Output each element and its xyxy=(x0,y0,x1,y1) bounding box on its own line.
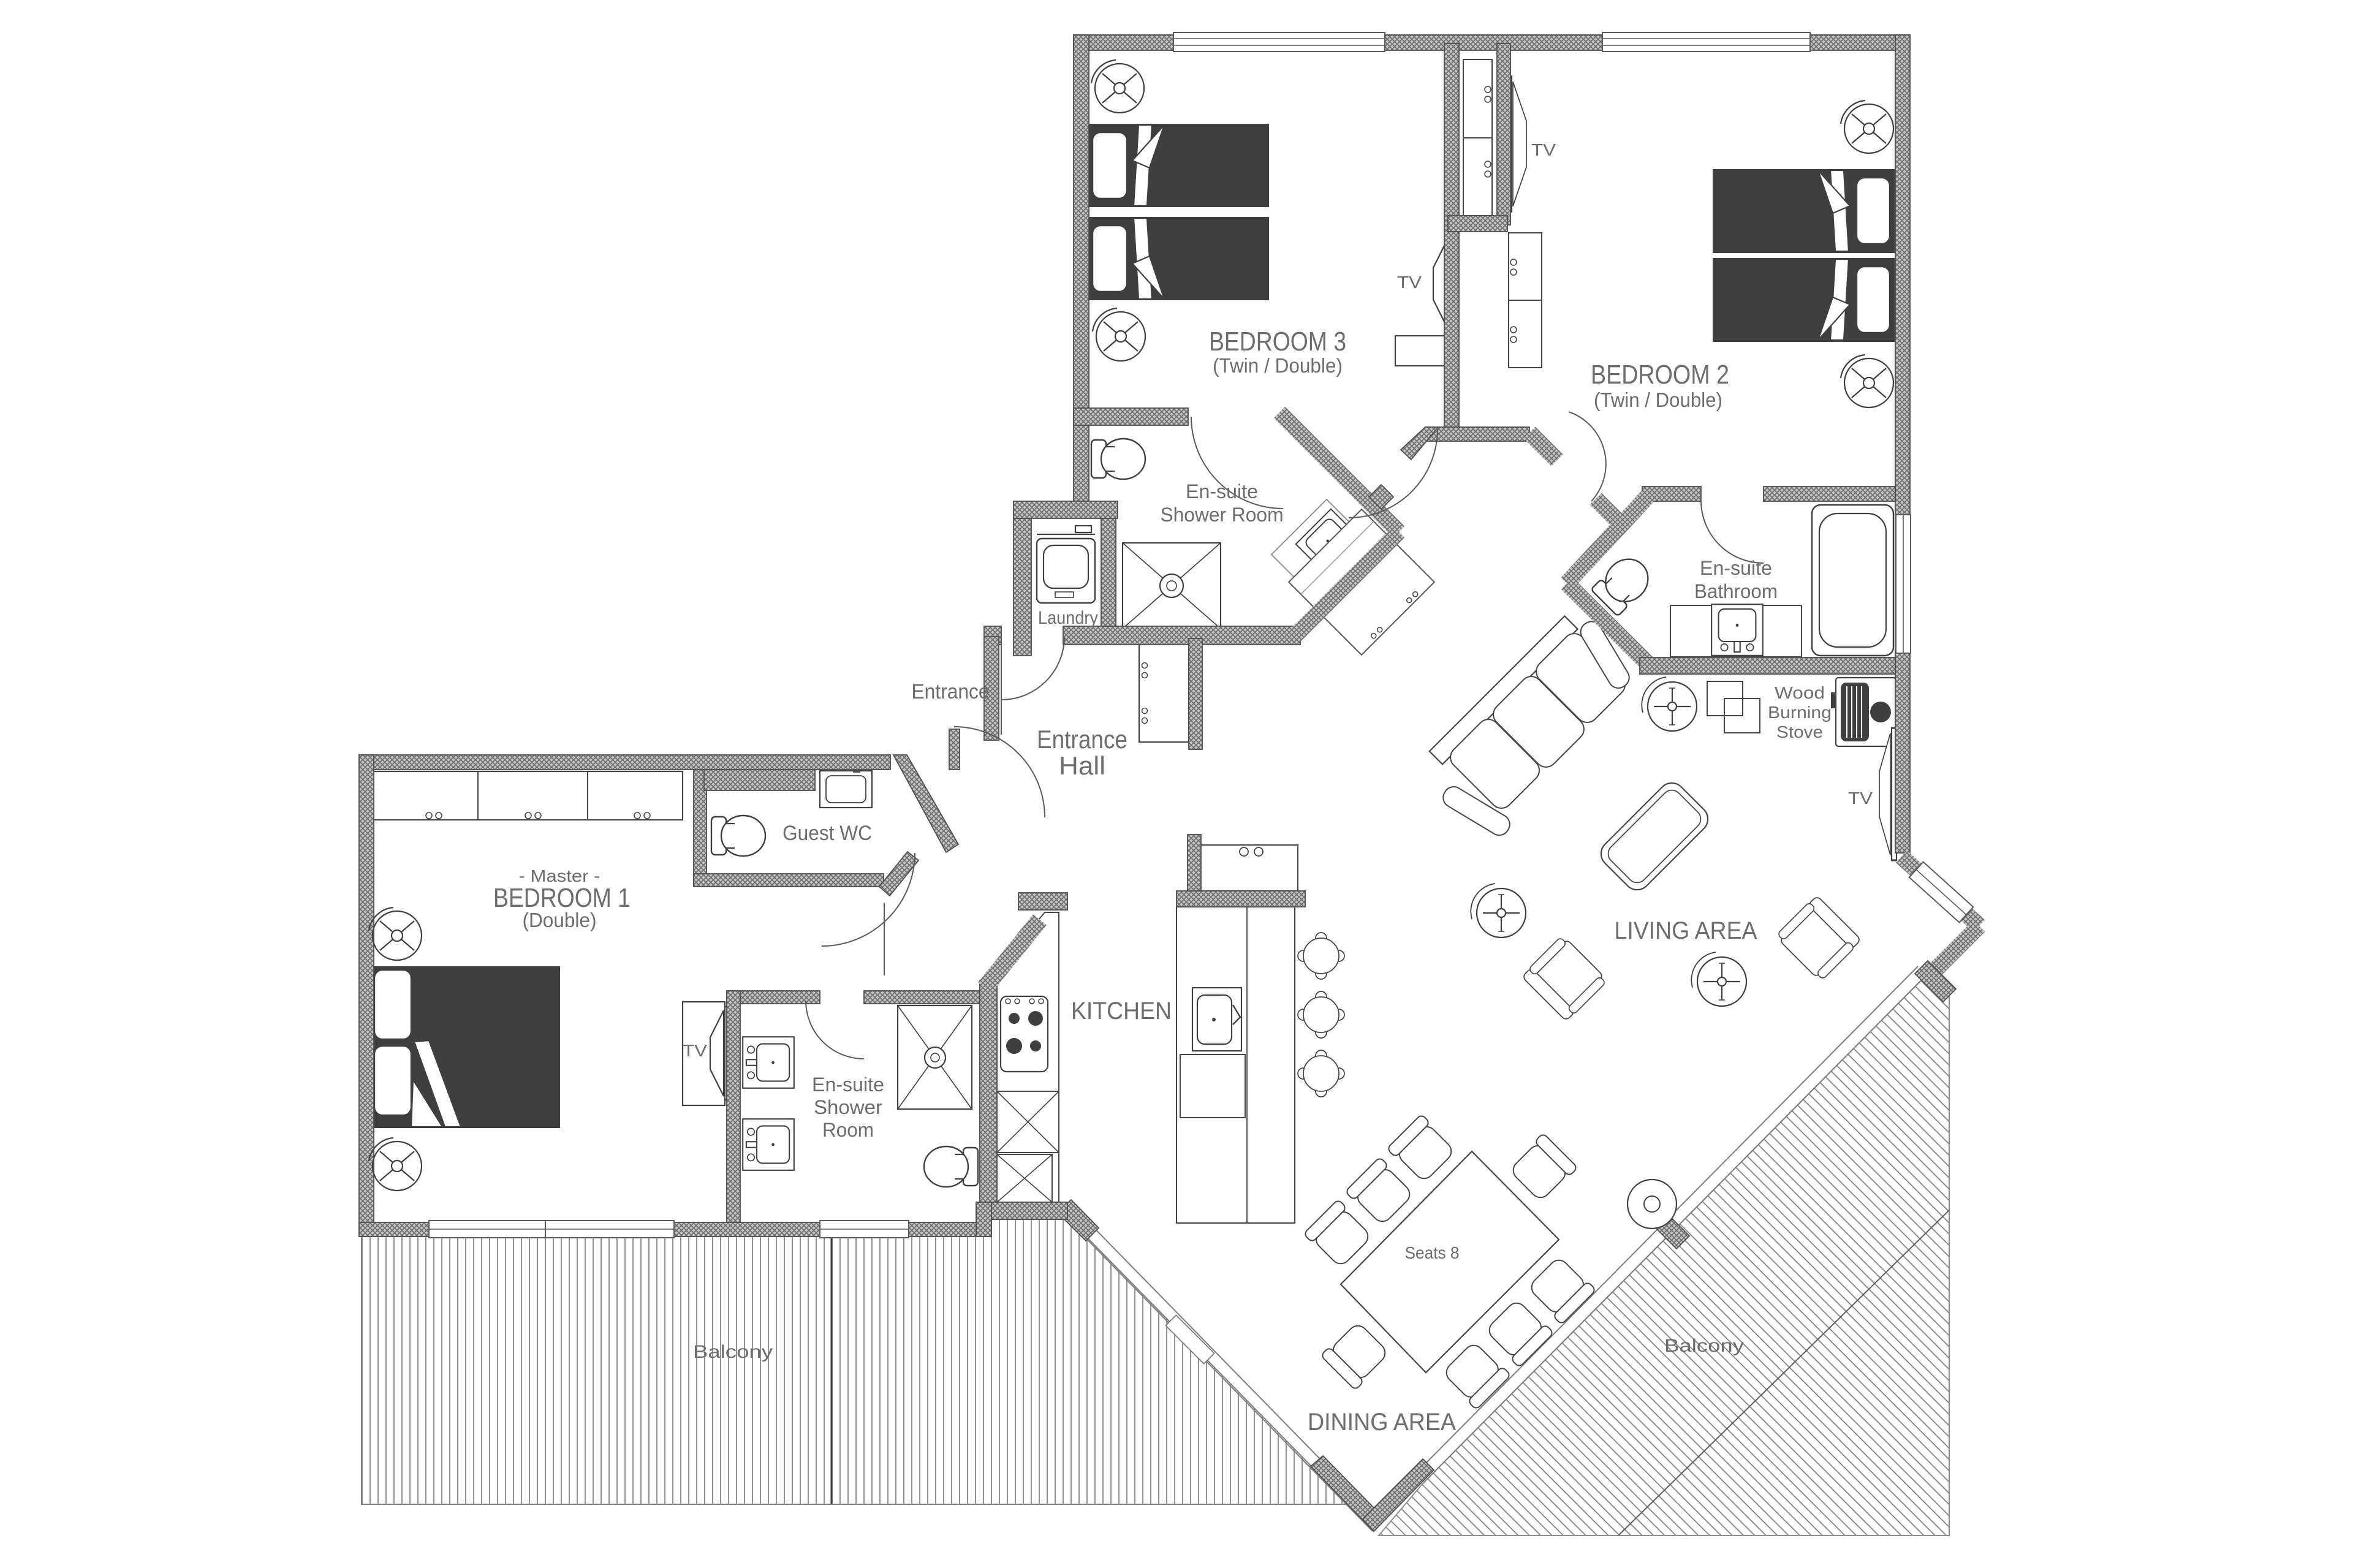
svg-text:En-suite: En-suite xyxy=(812,1074,884,1096)
svg-text:(Twin / Double): (Twin / Double) xyxy=(1213,354,1343,377)
svg-text:DINING AREA: DINING AREA xyxy=(1308,1409,1456,1436)
svg-text:(Double): (Double) xyxy=(523,909,597,931)
svg-text:TV: TV xyxy=(683,1041,707,1060)
svg-text:LIVING AREA: LIVING AREA xyxy=(1615,917,1757,944)
svg-text:Entrance: Entrance xyxy=(912,680,990,703)
svg-text:Entrance: Entrance xyxy=(1037,725,1127,754)
svg-text:Bathroom: Bathroom xyxy=(1694,580,1778,602)
svg-text:(Twin / Double): (Twin / Double) xyxy=(1594,388,1722,411)
svg-text:Balcony: Balcony xyxy=(1664,1336,1744,1356)
svg-text:Burning: Burning xyxy=(1768,703,1832,722)
svg-text:En-suite: En-suite xyxy=(1700,557,1772,579)
svg-text:Laundry: Laundry xyxy=(1038,608,1098,628)
svg-text:Seats 8: Seats 8 xyxy=(1405,1243,1460,1262)
svg-text:BEDROOM 3: BEDROOM 3 xyxy=(1209,327,1346,357)
svg-text:Stove: Stove xyxy=(1776,722,1823,741)
svg-text:Wood: Wood xyxy=(1775,683,1825,702)
svg-text:TV: TV xyxy=(1848,789,1873,808)
svg-text:Balcony: Balcony xyxy=(693,1342,773,1362)
svg-text:Shower: Shower xyxy=(814,1096,882,1118)
svg-text:Room: Room xyxy=(822,1119,874,1141)
svg-text:Hall: Hall xyxy=(1059,751,1105,780)
svg-text:BEDROOM 2: BEDROOM 2 xyxy=(1591,360,1729,390)
svg-text:En-suite: En-suite xyxy=(1186,480,1258,502)
svg-text:Guest WC: Guest WC xyxy=(782,822,872,845)
svg-text:TV: TV xyxy=(1397,273,1422,292)
svg-text:KITCHEN: KITCHEN xyxy=(1071,998,1172,1025)
svg-text:TV: TV xyxy=(1531,140,1556,159)
svg-text:Shower Room: Shower Room xyxy=(1161,504,1284,526)
